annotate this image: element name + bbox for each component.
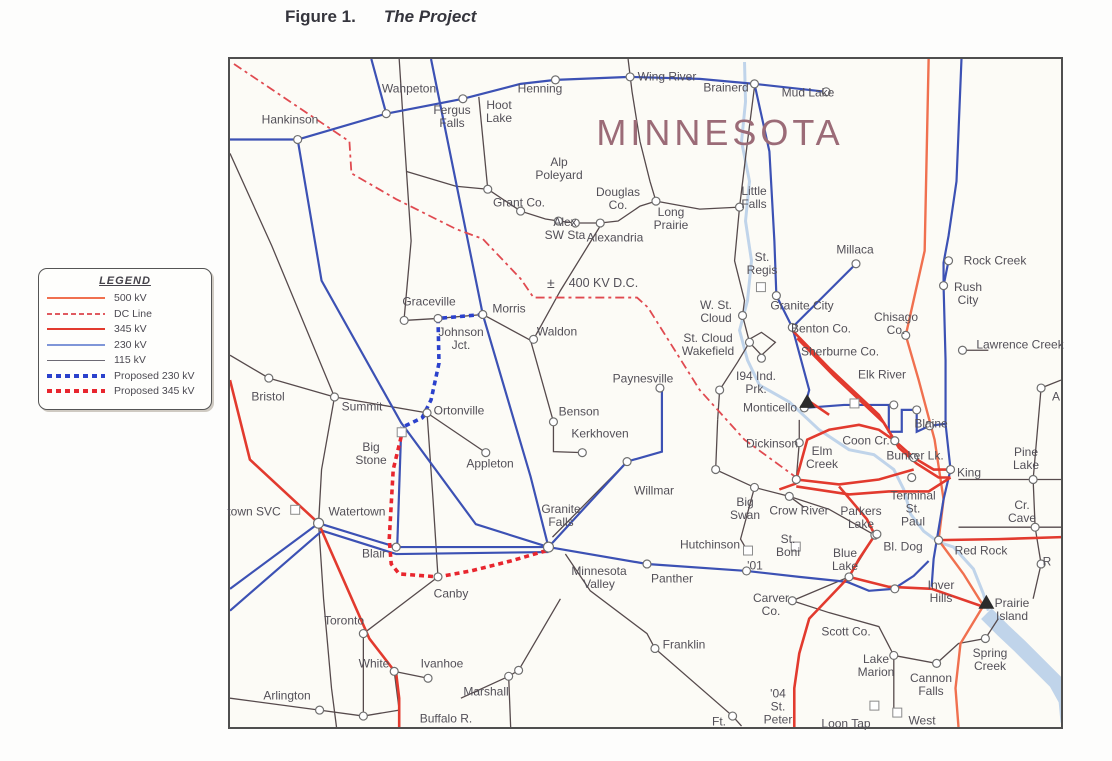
map-frame [228, 57, 1063, 729]
legend-line-sample [47, 328, 105, 330]
legend-item-label: Proposed 345 kV [114, 385, 195, 397]
lines-115kv [230, 59, 1061, 727]
legend-item-label: 500 kV [114, 292, 147, 304]
figure-title: Figure 1. The Project [285, 7, 476, 27]
legend-item: 500 kV [47, 292, 203, 304]
plant-markers [291, 283, 995, 717]
legend-item: DC Line [47, 308, 203, 320]
legend-item: 345 kV [47, 323, 203, 335]
lines-230kv [230, 59, 961, 611]
legend-line-sample [47, 374, 105, 378]
legend-items: 500 kVDC Line345 kV230 kV115 kVProposed … [47, 292, 203, 397]
legend-line-sample [47, 313, 105, 315]
legend-item: Proposed 345 kV [47, 385, 203, 397]
map-graphic [230, 59, 1061, 727]
figure-page: Figure 1. The Project [0, 0, 1112, 761]
substation-nodes [265, 73, 1045, 720]
legend-box: LEGEND 500 kVDC Line345 kV230 kV115 kVPr… [38, 268, 212, 410]
legend-item-label: 345 kV [114, 323, 147, 335]
legend-item: 230 kV [47, 339, 203, 351]
legend-title: LEGEND [47, 275, 203, 287]
legend-item: 115 kV [47, 354, 203, 366]
river-lines [740, 62, 1061, 722]
legend-line-sample [47, 389, 105, 393]
figure-number: Figure 1. [285, 7, 356, 27]
figure-name: The Project [384, 7, 477, 27]
legend-item-label: Proposed 230 kV [114, 370, 195, 382]
legend-line-sample [47, 297, 105, 299]
legend-item-label: 115 kV [114, 354, 146, 366]
legend-line-sample [47, 360, 105, 361]
legend-item: Proposed 230 kV [47, 370, 203, 382]
legend-line-sample [47, 344, 105, 346]
legend-item-label: DC Line [114, 308, 152, 320]
legend-item-label: 230 kV [114, 339, 147, 351]
line-dc [234, 64, 796, 478]
